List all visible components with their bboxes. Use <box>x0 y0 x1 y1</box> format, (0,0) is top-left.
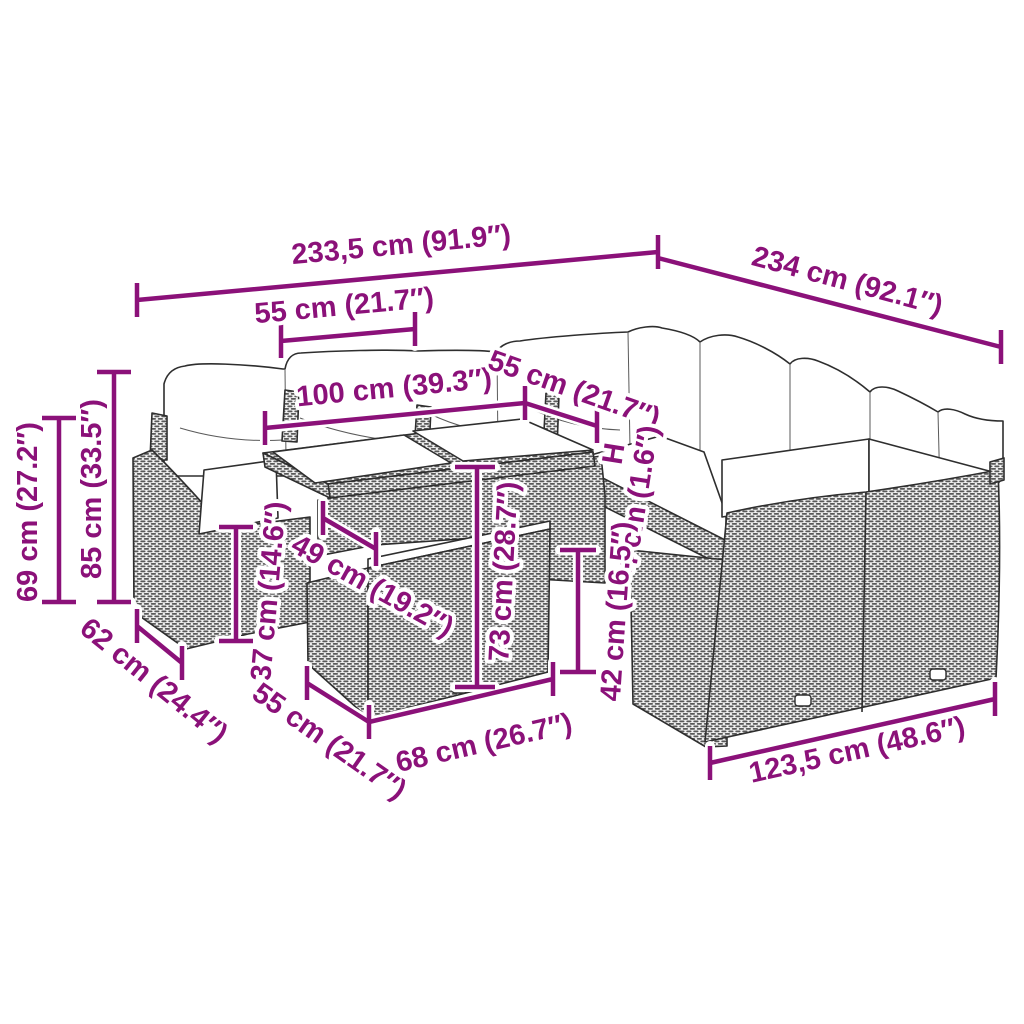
svg-text:85 cm (33.5″): 85 cm (33.5″) <box>76 399 108 579</box>
svg-text:69 cm (27.2″): 69 cm (27.2″) <box>12 422 44 602</box>
